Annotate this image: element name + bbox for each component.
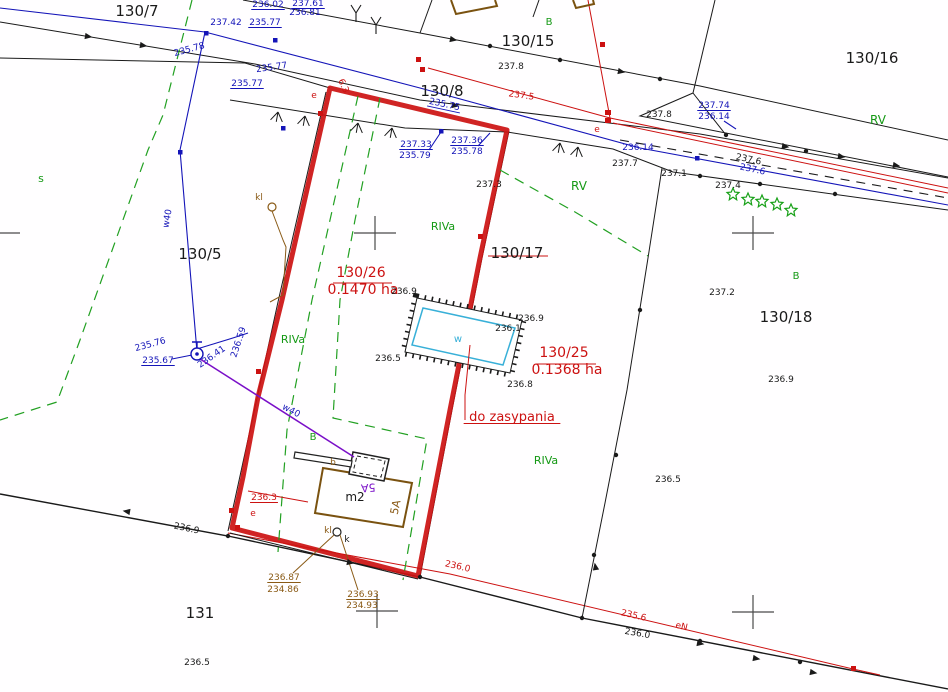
label-elev-blue-236-14a: 236.14 [698, 112, 730, 122]
label-elev-blue-236-59: 236.59 [229, 326, 248, 359]
label-soil-RIVa-3: RIVa [534, 454, 558, 467]
label-mark-b: b [330, 458, 336, 468]
label-elev-brown-234-86: 234.86 [267, 585, 299, 595]
label-soil-RIVa-1: RIVa [431, 220, 455, 233]
label-elev-236-0-south: 236.0 [624, 627, 651, 641]
label-elev-brown-234-93: 234.93 [346, 601, 378, 611]
top-slash-line [533, 0, 539, 17]
map-viewport: 130/7130/15130/16130/8130/5130/17130/181… [0, 0, 948, 692]
label-parcel-number-130-5: 130/5 [178, 245, 221, 263]
label-area-size-130-26: 0.1470 ha [328, 282, 399, 298]
label-power-mark-e-3: e [250, 509, 256, 519]
label-elev-blue-236-02: 236.02 [252, 0, 284, 10]
label-elev-blue-235-67: 235.67 [142, 356, 174, 366]
label-elev-red-235-6: 235.6 [620, 608, 648, 624]
south-parcel-boundary [0, 494, 948, 689]
power-drop-line [588, 0, 610, 118]
label-soil-B-1: B [546, 17, 553, 28]
boundary-130-17-130-18 [582, 168, 662, 618]
label-elev-236-5-bottom: 236.5 [184, 658, 210, 668]
label-area-size-130-25: 0.1368 ha [532, 362, 603, 378]
label-elev-236-9-pit-tl: 236.9 [391, 287, 417, 297]
label-parcel-number-130-7: 130/7 [115, 2, 158, 20]
label-elev-blue-235-79: 235.79 [399, 151, 431, 161]
label-elev-236-1-pit: 236.1 [495, 324, 521, 334]
label-elev-blue-237-33: 237.33 [400, 140, 432, 150]
label-soil-B-2: B [310, 432, 317, 443]
label-power-mark-eN: eN [674, 621, 688, 634]
power-line-double-2 [613, 123, 948, 193]
label-elev-237-8a: 237.8 [498, 62, 524, 72]
label-elev-237-3: 237.3 [476, 180, 502, 190]
label-elev-237-2: 237.2 [709, 288, 735, 298]
label-elev-blue-237-42: 237.42 [210, 18, 242, 28]
label-parcel-number-130-17: 130/17 [491, 244, 544, 262]
label-note-do-zasypania: do zasypania [469, 410, 555, 425]
label-elev-237-1: 237.1 [661, 169, 687, 179]
label-elev-red-236-0: 236.0 [444, 559, 472, 575]
lean-to-outline [294, 452, 352, 467]
label-area-number-130-26: 130/26 [336, 265, 385, 281]
label-elev-237-7: 237.7 [612, 159, 638, 169]
label-elev-237-4: 237.4 [715, 181, 741, 191]
label-parcel-number-131: 131 [186, 604, 215, 622]
label-soil-RIVa-2: RIVa [281, 333, 305, 346]
water-service-purple [197, 357, 354, 457]
label-elev-blue-237-74: 237.74 [698, 101, 730, 111]
hydrant-icon [191, 342, 203, 360]
label-elev-blue-235-78b: 235.78 [451, 147, 483, 157]
label-elev-236-8-pit: 236.8 [507, 380, 533, 390]
label-elev-236-5a: 236.5 [655, 475, 681, 485]
label-elev-blue-235-77c: 235.77 [231, 79, 263, 89]
label-area-number-130-25: 130/25 [539, 345, 588, 361]
label-parcel-number-130-16: 130/16 [846, 49, 899, 67]
label-water-mark-w: w [454, 334, 462, 345]
south-boundaries [0, 168, 948, 689]
label-elev-blue-235-76: 235.76 [134, 336, 167, 354]
label-parcel-number-130-15: 130/15 [502, 32, 555, 50]
excavation-pit [405, 298, 522, 420]
label-soil-s: s [38, 172, 44, 185]
gas-valve-icon [268, 203, 276, 211]
label-soil-B-3: B [793, 271, 800, 282]
label-power-mark-e-2: e [594, 125, 600, 135]
label-elev-236-9-pit-tr: 236.9 [518, 314, 544, 324]
label-elev-brown-236-93: 236.93 [347, 590, 379, 600]
label-elev-red-236-3: 236.3 [251, 493, 277, 503]
cadastral-map-canvas[interactable]: 130/7130/15130/16130/8130/5130/17130/181… [0, 0, 948, 692]
water-main-branch-south [180, 32, 205, 352]
label-elev-236-5-pit: 236.5 [375, 354, 401, 364]
label-power-mark-e-1: e [311, 91, 317, 101]
label-elev-237-8b: 237.8 [646, 110, 672, 120]
cadastral-bottom [230, 533, 418, 579]
label-soil-RV-1: RV [571, 179, 588, 193]
label-pipe-w40-a: w40 [161, 208, 174, 229]
label-elev-red-237-5: 237.5 [508, 89, 535, 102]
top-building-2 [573, 0, 594, 8]
label-mark-k: k [344, 535, 350, 545]
gas-line-brown [268, 203, 286, 302]
label-soil-RV-2: RV [870, 113, 887, 127]
well-icon [333, 528, 341, 536]
label-mark-kl-b: kl [324, 526, 332, 536]
label-elev-blue-235-78a: 235.78 [173, 41, 206, 59]
label-elev-236-9a: 236.9 [768, 375, 794, 385]
boundary-130-15-130-16 [693, 0, 715, 93]
leader-23774 [724, 121, 736, 129]
top-building-1 [451, 0, 497, 14]
label-parcel-number-130-18: 130/18 [760, 308, 813, 326]
label-elev-blue-235-77b: 235.77 [255, 61, 288, 75]
label-elev-blue-236-81: 236.81 [289, 8, 321, 18]
label-elev-236-9-south: 236.9 [173, 521, 201, 536]
label-elev-brown-236-87: 236.87 [268, 573, 300, 583]
label-elev-blue-237-36: 237.36 [451, 136, 483, 146]
label-parcel-number-130-8: 130/8 [420, 82, 463, 100]
label-elev-blue-235-77a: 235.77 [249, 18, 281, 28]
boundary-130-7-130-15 [420, 0, 432, 33]
leader-23567 [172, 355, 192, 359]
road-edge-east [640, 93, 948, 177]
label-building-number-5A-purple: 5A [360, 481, 376, 495]
gas-line-path [270, 211, 286, 302]
label-elev-blue-236-14b: 236.14 [622, 143, 654, 153]
label-mark-kl-a: kl [255, 193, 263, 203]
